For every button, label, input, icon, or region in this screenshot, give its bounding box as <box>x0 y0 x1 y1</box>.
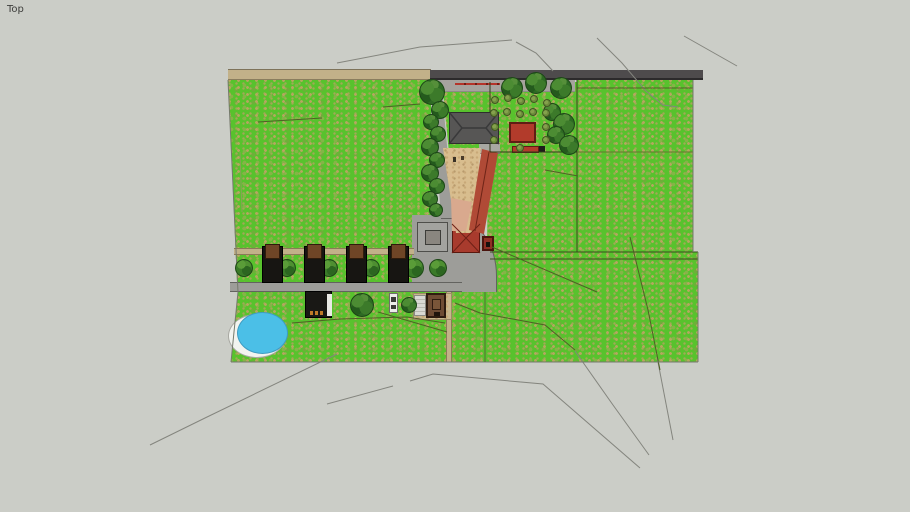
stall-roof-vent <box>307 244 322 259</box>
tree[interactable] <box>559 135 579 155</box>
market-stall[interactable] <box>346 246 367 283</box>
stall-roof-vent <box>349 244 364 259</box>
shrub[interactable] <box>516 144 524 152</box>
market-stall[interactable] <box>304 246 325 283</box>
shrub[interactable] <box>529 108 537 116</box>
shrub[interactable] <box>491 96 499 104</box>
stall-roof-vent <box>265 244 280 259</box>
shrub[interactable] <box>517 97 525 105</box>
site-plan-scene <box>0 0 910 512</box>
sketchup-viewport[interactable]: Top <box>0 0 910 512</box>
tree[interactable] <box>429 203 443 217</box>
tree[interactable] <box>525 72 547 94</box>
shrub[interactable] <box>504 94 512 102</box>
shrub[interactable] <box>503 108 511 116</box>
vegetation-layer <box>0 0 910 512</box>
shrub[interactable] <box>542 109 550 117</box>
shrub[interactable] <box>542 123 550 131</box>
bush[interactable] <box>429 259 447 277</box>
shrub[interactable] <box>543 99 551 107</box>
shrub[interactable] <box>490 109 498 117</box>
stall-roof-vent <box>391 244 406 259</box>
shrub[interactable] <box>516 110 524 118</box>
tree[interactable] <box>550 77 572 99</box>
shrub[interactable] <box>491 123 499 131</box>
shrub[interactable] <box>490 136 498 144</box>
shrub[interactable] <box>542 136 550 144</box>
bush[interactable] <box>235 259 253 277</box>
market-stall[interactable] <box>388 246 409 283</box>
market-stall[interactable] <box>262 246 283 283</box>
tree[interactable] <box>350 293 374 317</box>
tree[interactable] <box>401 297 417 313</box>
shrub[interactable] <box>530 95 538 103</box>
